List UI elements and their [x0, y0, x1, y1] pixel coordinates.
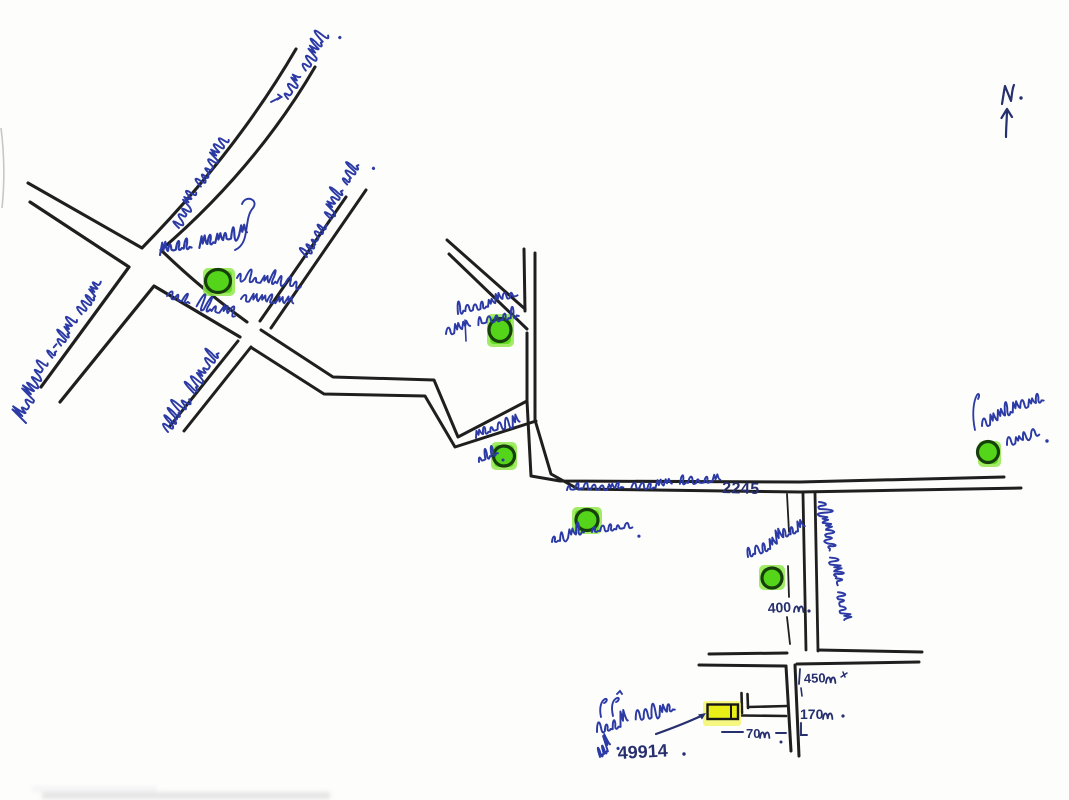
svg-text:170: 170 — [800, 706, 824, 722]
svg-text:450: 450 — [804, 670, 826, 686]
svg-text:49914: 49914 — [617, 740, 668, 763]
svg-text:2245: 2245 — [722, 480, 760, 498]
svg-text:400: 400 — [767, 599, 791, 616]
svg-text:70: 70 — [746, 726, 760, 741]
